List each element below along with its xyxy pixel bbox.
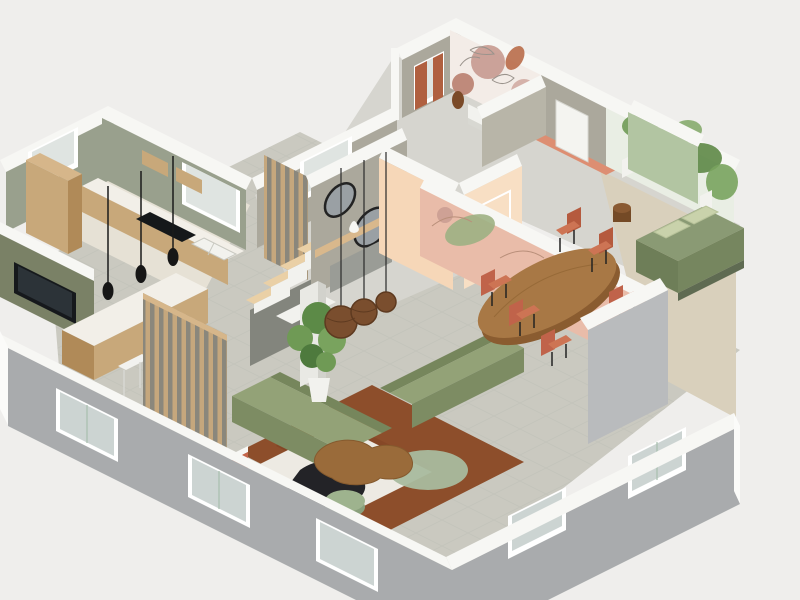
wall-end-cap (734, 413, 740, 504)
pendant-shade (168, 248, 179, 266)
curtain-left (415, 61, 427, 110)
wall-end-cap (0, 331, 8, 425)
wall-step-cap (391, 48, 399, 120)
curtain-right (433, 53, 443, 102)
tall-cabinet-side (68, 174, 82, 254)
floorplan-svg (0, 0, 800, 600)
mural-rose-circle (452, 73, 474, 95)
mural-rose-circle (471, 45, 505, 79)
pendant-shade (136, 265, 147, 283)
pendant-shade (103, 282, 114, 300)
floorplan-render (0, 0, 800, 600)
bath-vase (452, 91, 464, 109)
wood-stool (613, 203, 631, 213)
